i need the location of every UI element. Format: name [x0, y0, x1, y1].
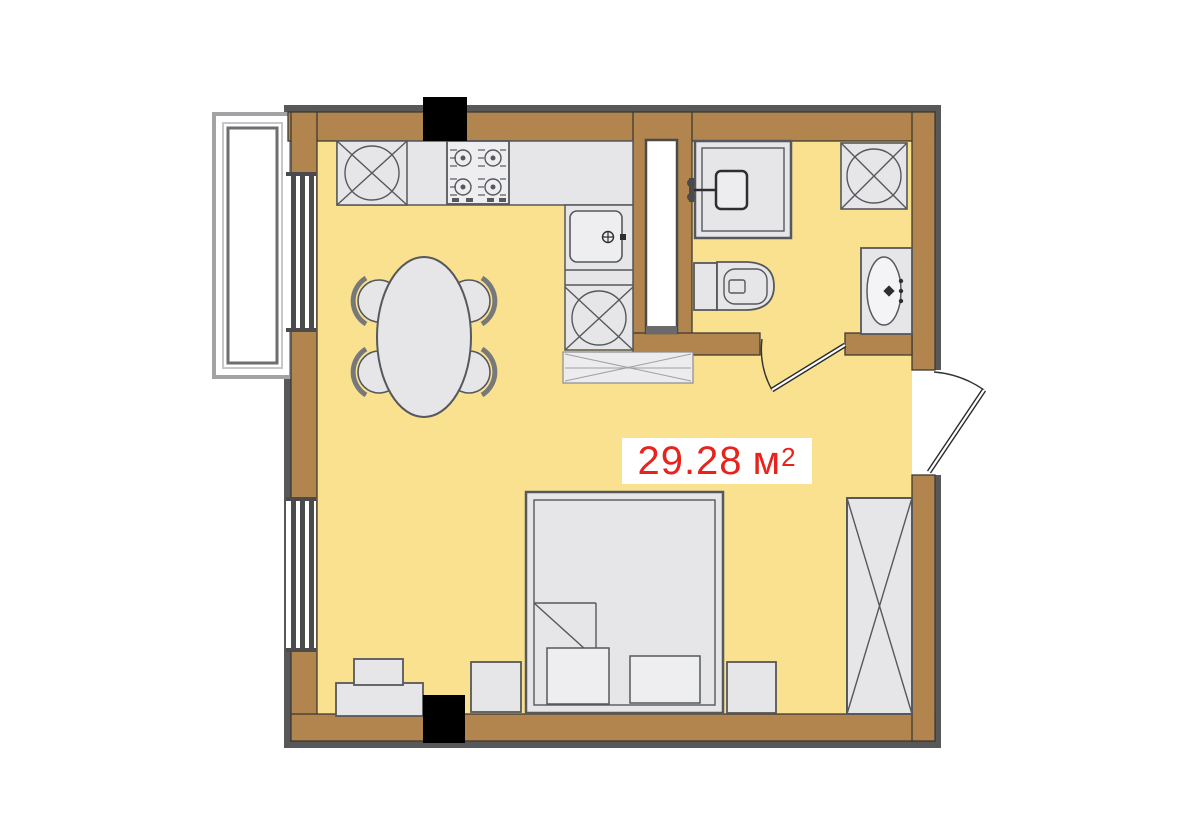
counter-hatch [563, 352, 693, 383]
entrance-door [929, 372, 984, 472]
nightstand-left [471, 662, 521, 712]
stove-icon [447, 141, 509, 204]
toilet-icon [694, 262, 774, 310]
ventilation-shaft [646, 140, 677, 334]
wall-right-upper [912, 112, 935, 370]
area-value: 29.28 [637, 441, 742, 481]
area-label: 29.28 м 2 [622, 438, 812, 484]
balcony-window-bay [214, 114, 291, 377]
wall-top [288, 112, 935, 141]
shower-icon [687, 141, 791, 238]
dining-table-icon [377, 257, 471, 417]
structural-column-bottom [423, 695, 465, 743]
wardrobe-icon [847, 498, 912, 714]
wall-bath-bottom-right [845, 333, 912, 355]
window-upper [286, 172, 316, 332]
pillow-icon [630, 656, 700, 703]
wall-bottom [291, 714, 935, 741]
nightstand-right [727, 662, 776, 713]
bed [526, 492, 723, 713]
pillow-icon [547, 648, 609, 704]
structural-column-top [423, 97, 467, 141]
vanity-sink-icon [861, 248, 912, 334]
washing-machine-icon [841, 143, 907, 209]
kitchen-sink-icon [570, 211, 626, 262]
floorplan-drawing [0, 0, 1200, 834]
wall-right-lower [912, 475, 935, 741]
window-lower [286, 497, 316, 652]
refrigerator-icon [337, 141, 407, 205]
floorplan-canvas: 29.28 м 2 [0, 0, 1200, 834]
area-unit: м [753, 441, 782, 481]
